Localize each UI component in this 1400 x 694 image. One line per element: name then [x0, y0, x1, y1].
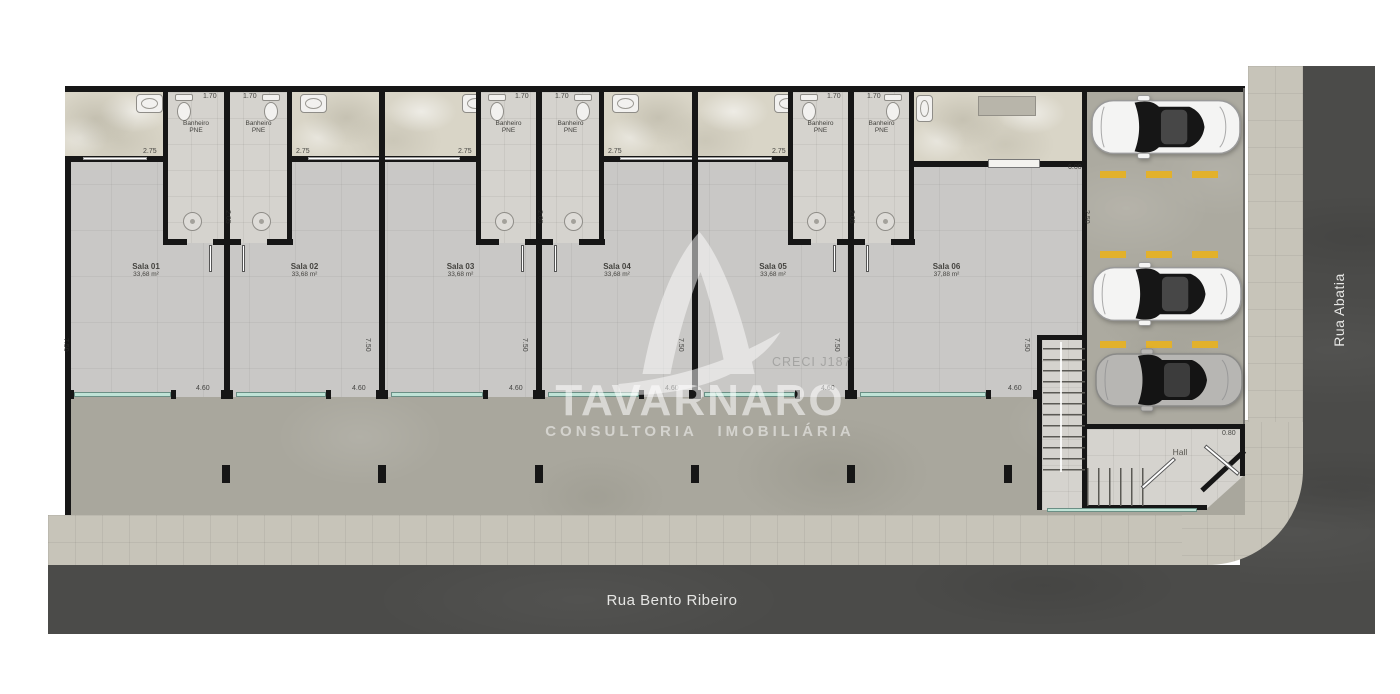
- wall-stairs-left: [1037, 335, 1042, 510]
- room-area: 33,68 m²: [577, 271, 657, 278]
- bathroom-label-line2: PNE: [852, 127, 912, 134]
- yard-pillar: [691, 465, 699, 483]
- storefront-door-jamb: [171, 390, 176, 399]
- storefront-glass: [704, 392, 795, 397]
- bathroom-door-leaf: [833, 245, 836, 272]
- dimension-label: 2.75: [143, 148, 157, 155]
- storefront-pier: [689, 390, 701, 399]
- sidewalk-right: [1248, 66, 1303, 422]
- bathroom-wall-right: [909, 88, 914, 245]
- room-area: 33,68 m²: [106, 271, 186, 278]
- dimension-label: 4.60: [821, 385, 835, 392]
- toilet-icon: [800, 94, 818, 101]
- sidewalk-bottom: [48, 515, 1182, 565]
- toilet-icon: [886, 102, 900, 121]
- room-divider-wall: [692, 88, 698, 397]
- room-name: Sala 01: [106, 262, 186, 271]
- bathroom-label: BanheiroPNE: [166, 120, 226, 135]
- drain-dot: [502, 219, 507, 224]
- bathroom-door-leaf: [209, 245, 212, 272]
- sink: [300, 94, 327, 113]
- dimension-label: 2.75: [772, 148, 786, 155]
- room-area: 33,68 m²: [421, 271, 501, 278]
- storefront-door-jamb: [326, 390, 331, 399]
- bathroom-label-line2: PNE: [791, 127, 851, 134]
- dimension-label: 2.05: [536, 210, 543, 224]
- bathroom-wall-right: [287, 88, 292, 245]
- storefront-pier: [1033, 390, 1042, 399]
- storefront-glass: [74, 392, 171, 397]
- storefront-door-jamb: [986, 390, 991, 399]
- bathroom-label-line2: PNE: [166, 127, 226, 134]
- room-name: Sala 06: [907, 262, 987, 271]
- room-label: Sala 0333,68 m²: [421, 262, 501, 279]
- bathroom-label-line2: PNE: [541, 127, 601, 134]
- bathroom-wall-left: [788, 88, 793, 245]
- bathroom-label-line1: Banheiro: [229, 120, 289, 127]
- drain-dot: [883, 219, 888, 224]
- dimension-label: 4.60: [1008, 385, 1022, 392]
- storefront-glass: [548, 392, 639, 397]
- floor-plan-canvas: Hall Rua Bento Ribeiro Rua Abatia: [0, 0, 1400, 694]
- drain-dot: [814, 219, 819, 224]
- toilet-icon: [576, 102, 590, 121]
- car-white-2: [1091, 261, 1243, 327]
- dimension-label: 1.70: [827, 93, 841, 100]
- bathroom-label: BanheiroPNE: [479, 120, 539, 135]
- service-opening: [988, 159, 1040, 168]
- storefront-pier: [65, 390, 74, 399]
- bathroom-label: BanheiroPNE: [541, 120, 601, 135]
- room-label: Sala 0433,68 m²: [577, 262, 657, 279]
- shower-drain-icon: [252, 212, 271, 231]
- dimension-label: 1.70: [867, 93, 881, 100]
- sink: [612, 94, 639, 113]
- storefront-door-jamb: [795, 390, 800, 399]
- dimension-label: 0.80: [1222, 430, 1236, 437]
- sink-basin: [617, 98, 634, 109]
- bathroom-label-line1: Banheiro: [541, 120, 601, 127]
- sink-basin: [141, 98, 158, 109]
- room-name: Sala 02: [265, 262, 345, 271]
- bathroom-label-line2: PNE: [229, 127, 289, 134]
- toilet-icon: [802, 102, 816, 121]
- room-divider-wall: [848, 88, 854, 397]
- shower-drain-icon: [807, 212, 826, 231]
- bathroom-wall-bottom: [579, 239, 605, 245]
- toilet-icon: [574, 94, 592, 101]
- dimension-label: 4.60: [509, 385, 523, 392]
- storefront-glass: [860, 392, 986, 397]
- room-label: Sala 0133,68 m²: [106, 262, 186, 279]
- bathroom-wall-left: [163, 88, 168, 245]
- shower-drain-icon: [183, 212, 202, 231]
- sink: [916, 95, 933, 122]
- dimension-label: 2.75: [296, 148, 310, 155]
- dimension-label: 4.60: [196, 385, 210, 392]
- window-sill: [83, 157, 147, 160]
- parking-stall-line: [1100, 251, 1238, 258]
- bathroom-label-line1: Banheiro: [166, 120, 226, 127]
- room-divider-wall: [379, 88, 385, 397]
- yard-pillar: [222, 465, 230, 483]
- bathroom-wall-right: [599, 88, 604, 245]
- dimension-label: 1.70: [555, 93, 569, 100]
- room-area: 33,68 m²: [265, 271, 345, 278]
- dimension-label: 7.50: [833, 338, 840, 352]
- drain-dot: [571, 219, 576, 224]
- wall-parking-bottom: [1082, 424, 1245, 429]
- storefront-door-jamb: [639, 390, 644, 399]
- toilet-icon: [262, 94, 280, 101]
- bathroom-wall-bottom: [163, 239, 187, 245]
- dimension-label: 2.05: [224, 210, 231, 224]
- toilet-icon: [177, 102, 191, 121]
- dimension-label: 7.50: [1023, 338, 1030, 352]
- yard-pillar: [378, 465, 386, 483]
- dimension-label: 1.70: [243, 93, 257, 100]
- hall-label: Hall: [1140, 448, 1220, 458]
- sink: [136, 94, 163, 113]
- car-white-1: [1090, 94, 1242, 160]
- bathroom-label-line1: Banheiro: [852, 120, 912, 127]
- street-label-right: Rua Abatia: [1331, 230, 1347, 390]
- dimension-label: 7.50: [364, 338, 371, 352]
- room-divider-wall: [536, 88, 542, 397]
- dimension-label: 2.75: [608, 148, 622, 155]
- bathroom-door-leaf: [242, 245, 245, 272]
- dimension-label: 4.60: [665, 385, 679, 392]
- stair-glass-front: [1047, 508, 1197, 512]
- room-name: Sala 04: [577, 262, 657, 271]
- dimension-label: 2.50: [1083, 210, 1090, 224]
- bathroom-door-leaf: [521, 245, 524, 272]
- sink-basin: [305, 98, 322, 109]
- yard-pillar: [847, 465, 855, 483]
- toilet-icon: [884, 94, 902, 101]
- car-silver-3: [1094, 348, 1244, 412]
- bathroom-label: BanheiroPNE: [229, 120, 289, 135]
- room-name: Sala 05: [733, 262, 813, 271]
- storefront-glass: [236, 392, 326, 397]
- storefront-glass: [391, 392, 483, 397]
- parking-stall-line: [1100, 341, 1238, 348]
- shower-drain-icon: [564, 212, 583, 231]
- stair-rail: [1060, 342, 1062, 472]
- room-label: Sala 0637,88 m²: [907, 262, 987, 279]
- storefront-pier: [845, 390, 857, 399]
- drain-dot: [259, 219, 264, 224]
- bathroom-label-line1: Banheiro: [479, 120, 539, 127]
- bathroom-door-leaf: [554, 245, 557, 272]
- yard-pillar: [1004, 465, 1012, 483]
- bathroom-door-leaf: [866, 245, 869, 272]
- storefront-door-jamb: [483, 390, 488, 399]
- room-name: Sala 03: [421, 262, 501, 271]
- bathroom-wall-bottom: [788, 239, 811, 245]
- storefront-pier: [376, 390, 388, 399]
- room-divider-wall: [224, 88, 230, 397]
- bathroom-label: BanheiroPNE: [791, 120, 851, 135]
- bathroom-label-line2: PNE: [479, 127, 539, 134]
- shower-drain-icon: [495, 212, 514, 231]
- dimension-label: 4.60: [352, 385, 366, 392]
- dimension-label: 2.75: [458, 148, 472, 155]
- toilet-icon: [175, 94, 193, 101]
- shower-drain-icon: [876, 212, 895, 231]
- storefront-pier: [221, 390, 233, 399]
- bathroom-wall-bottom: [891, 239, 915, 245]
- toilet-icon: [488, 94, 506, 101]
- dimension-label: 6.00: [1068, 164, 1082, 171]
- bathroom-wall-bottom: [476, 239, 499, 245]
- bathroom-label-line1: Banheiro: [791, 120, 851, 127]
- room-label: Sala 0233,68 m²: [265, 262, 345, 279]
- drain-dot: [190, 219, 195, 224]
- dimension-label: 2.05: [848, 210, 855, 224]
- staircase-vertical-flight: [1043, 348, 1085, 474]
- dimension-label: 7.50: [62, 338, 69, 352]
- street-label-bottom: Rua Bento Ribeiro: [522, 592, 822, 609]
- room-area: 37,88 m²: [907, 271, 987, 278]
- dimension-label: 1.70: [515, 93, 529, 100]
- toilet-icon: [264, 102, 278, 121]
- room-label: Sala 0533,68 m²: [733, 262, 813, 279]
- storefront-pier: [533, 390, 545, 399]
- bathroom-wall-left: [476, 88, 481, 245]
- dimension-label: 7.50: [521, 338, 528, 352]
- dimension-label: 7.50: [677, 338, 684, 352]
- wall-stairs-top: [1037, 335, 1085, 340]
- bathroom-wall-bottom: [267, 239, 293, 245]
- bathroom-label: BanheiroPNE: [852, 120, 912, 135]
- counter: [978, 96, 1036, 116]
- toilet-icon: [490, 102, 504, 121]
- yard-pillar: [535, 465, 543, 483]
- room-area: 33,68 m²: [733, 271, 813, 278]
- parking-stall-line: [1100, 171, 1238, 178]
- dimension-label: 1.70: [203, 93, 217, 100]
